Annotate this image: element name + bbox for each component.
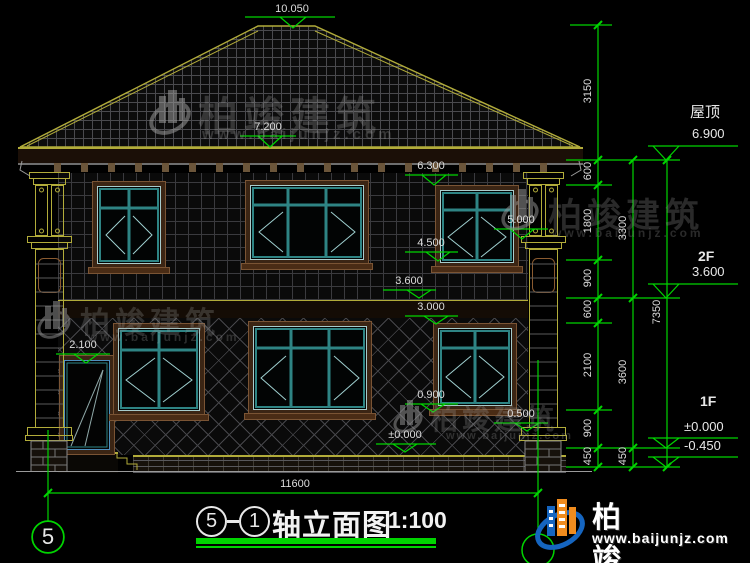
elevation-roof-eave: 7.200 bbox=[239, 121, 297, 133]
dim-1f-storey: 3600 bbox=[617, 350, 631, 394]
brand-logo-icon bbox=[534, 492, 588, 554]
elevation-1f-window-sill: 0.900 bbox=[404, 389, 458, 401]
elevation-1f-floor: ±0.000 bbox=[374, 429, 436, 441]
level-2f-label: 2F bbox=[698, 249, 714, 264]
brand-logo-url: www.baijunjz.com bbox=[592, 530, 729, 546]
title-axis-dash bbox=[227, 520, 239, 523]
elevation-2f-window-top: 6.300 bbox=[404, 160, 458, 172]
drawing-scale: 1:100 bbox=[388, 507, 447, 534]
title-underline-thick bbox=[196, 538, 436, 544]
entrance-steps bbox=[117, 452, 137, 470]
elevation-roof-apex: 10.050 bbox=[252, 3, 332, 15]
title-underline-thin bbox=[196, 546, 436, 548]
elevation-2f-window-sill: 4.500 bbox=[404, 237, 458, 249]
dim-segment: 1800 bbox=[582, 199, 596, 243]
dim-overall-width: 11600 bbox=[258, 478, 332, 490]
elevation-column-base: 0.500 bbox=[493, 408, 549, 420]
elevation-drawing-canvas: 柏竣建筑 www.baijunjz.com 柏竣建筑 www.baijunjz.… bbox=[0, 0, 750, 563]
dim-roof-height: 3150 bbox=[582, 69, 596, 113]
axis-bubble-5-label: 5 bbox=[42, 524, 54, 550]
title-axis-start-bubble: 5 bbox=[196, 506, 227, 537]
level-2f-value: 3.600 bbox=[692, 265, 725, 279]
watermark-url: www.baijunjz.com bbox=[446, 430, 573, 442]
elevation-1f-window-top: 3.000 bbox=[404, 301, 458, 313]
watermark-logo-icon bbox=[148, 84, 194, 138]
level-1f-value: ±0.000 bbox=[684, 420, 724, 434]
dim-segment: 2100 bbox=[582, 343, 596, 387]
dim-2f-storey: 3300 bbox=[617, 206, 631, 250]
watermark-logo-icon bbox=[500, 184, 542, 234]
elevation-2f-column-cap: 5.000 bbox=[493, 214, 549, 226]
dim-segment: 600 bbox=[582, 287, 596, 331]
level-roof-label: 屋顶 bbox=[690, 105, 720, 122]
dim-plinth: 450 bbox=[617, 434, 631, 478]
level-below-ground-value: -0.450 bbox=[684, 439, 721, 453]
title-axis-end: 1 bbox=[249, 510, 260, 533]
level-1f-label: 1F bbox=[700, 394, 716, 409]
dim-total-height: 7350 bbox=[651, 290, 665, 334]
title-axis-start: 5 bbox=[206, 510, 217, 533]
watermark-url: www.baijunjz.com bbox=[202, 126, 395, 143]
axis-bubble-5: 5 bbox=[32, 521, 64, 553]
elevation-door-top: 2.100 bbox=[55, 339, 111, 351]
dimension-lines bbox=[32, 17, 738, 563]
level-roof-value: 6.900 bbox=[692, 127, 725, 141]
dim-segment: 450 bbox=[582, 434, 596, 478]
brand-logo-name: 柏竣建筑 bbox=[592, 494, 624, 563]
dim-segment: 600 bbox=[582, 149, 596, 193]
watermark-logo-icon bbox=[36, 296, 74, 342]
elevation-2f-band-top: 3.600 bbox=[382, 275, 436, 287]
title-axis-end-bubble: 1 bbox=[239, 506, 270, 537]
